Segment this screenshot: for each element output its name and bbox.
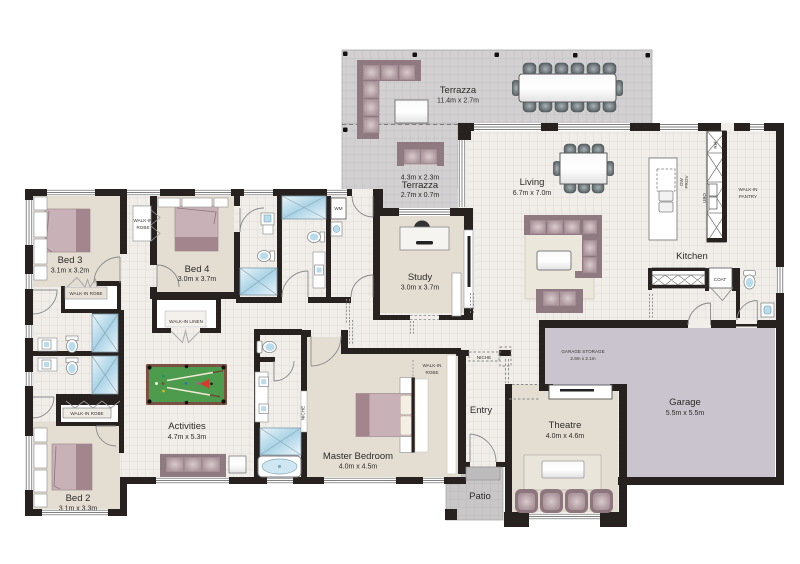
svg-text:Garage: Garage <box>669 397 701 408</box>
svg-text:3.1m x 3.2m: 3.1m x 3.2m <box>51 268 90 275</box>
svg-text:WM: WM <box>334 206 342 211</box>
svg-text:Theatre: Theatre <box>549 420 582 431</box>
svg-text:WALK-IN: WALK-IN <box>134 218 153 223</box>
svg-text:Bed 2: Bed 2 <box>66 493 91 504</box>
svg-text:WALK-IN: WALK-IN <box>739 187 758 192</box>
svg-text:3.1m x 3.3m: 3.1m x 3.3m <box>59 506 98 513</box>
svg-text:6.7m x 7.0m: 6.7m x 7.0m <box>513 190 552 197</box>
svg-text:NICHE: NICHE <box>301 406 306 420</box>
svg-text:ROBE: ROBE <box>136 225 149 230</box>
svg-text:3.0m x 3.7m: 3.0m x 3.7m <box>178 276 217 283</box>
svg-text:ROBE: ROBE <box>425 370 438 375</box>
svg-text:2.7m x 0.7m: 2.7m x 0.7m <box>401 192 440 199</box>
svg-text:WALK-IN: WALK-IN <box>423 363 442 368</box>
svg-text:4.7m x 5.3m: 4.7m x 5.3m <box>168 434 207 441</box>
svg-text:Bed 4: Bed 4 <box>185 264 210 275</box>
svg-text:Kitchen: Kitchen <box>676 251 708 262</box>
svg-text:4.0m x 4.5m: 4.0m x 4.5m <box>339 464 378 471</box>
svg-text:5.5m x 5.5m: 5.5m x 5.5m <box>666 410 705 417</box>
svg-text:Bed 3: Bed 3 <box>58 255 83 266</box>
svg-text:GARAGE STORAGE: GARAGE STORAGE <box>561 349 604 354</box>
svg-text:Master Bedroom: Master Bedroom <box>323 451 393 462</box>
svg-text:NICHE: NICHE <box>477 355 491 360</box>
svg-text:Terrazza: Terrazza <box>440 85 477 96</box>
svg-text:Entry: Entry <box>470 405 492 416</box>
svg-text:UBO: UBO <box>702 193 707 203</box>
svg-text:WALK-IN ROBE: WALK-IN ROBE <box>69 291 102 296</box>
svg-text:Living: Living <box>520 177 545 188</box>
svg-text:Activities: Activities <box>168 421 206 432</box>
svg-text:COAT: COAT <box>714 277 727 282</box>
svg-text:PANTRY: PANTRY <box>739 194 757 199</box>
svg-text:Study: Study <box>408 272 433 283</box>
svg-text:Patio: Patio <box>469 491 491 502</box>
svg-text:Terrazza: Terrazza <box>402 180 439 191</box>
svg-text:11.4m x 2.7m: 11.4m x 2.7m <box>437 98 479 105</box>
svg-text:4.0m x 4.6m: 4.0m x 4.6m <box>546 433 585 440</box>
svg-text:3.0m x 3.7m: 3.0m x 3.7m <box>401 285 440 292</box>
svg-text:WALK-IN LINEN: WALK-IN LINEN <box>169 319 203 324</box>
svg-text:PROV: PROV <box>684 175 689 189</box>
svg-text:2.9m x 2.1m: 2.9m x 2.1m <box>570 356 595 361</box>
svg-text:Ref: Ref <box>713 141 718 149</box>
svg-text:WALK-IN ROBE: WALK-IN ROBE <box>70 411 103 416</box>
